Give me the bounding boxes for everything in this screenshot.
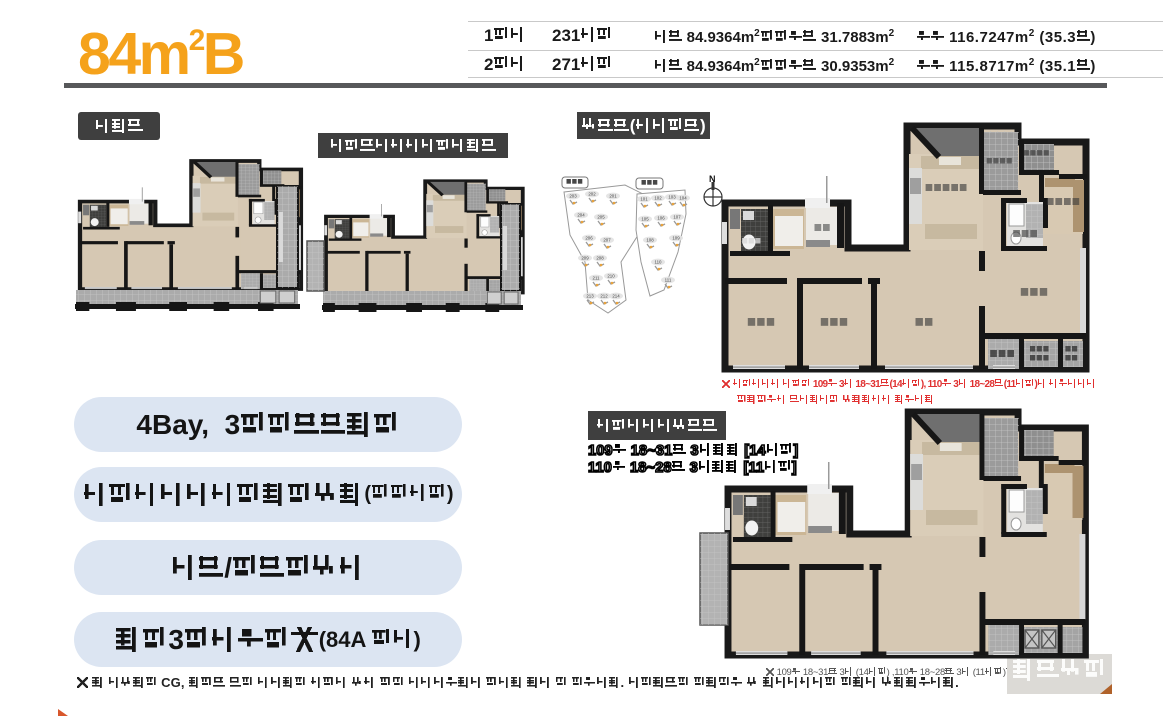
svg-text:213: 213: [586, 294, 594, 299]
svg-text:106: 106: [657, 216, 665, 221]
svg-text:210: 210: [607, 274, 615, 279]
svg-text:208: 208: [596, 256, 604, 261]
svg-text:103: 103: [668, 195, 676, 200]
svg-text:110: 110: [655, 260, 663, 265]
svg-text:212: 212: [600, 294, 608, 299]
svg-text:111: 111: [665, 278, 672, 283]
svg-text:102: 102: [654, 196, 662, 201]
svg-text:202: 202: [588, 192, 596, 197]
svg-text:205: 205: [597, 215, 605, 220]
svg-text:204: 204: [577, 213, 585, 218]
svg-text:207: 207: [603, 238, 611, 243]
svg-text:105: 105: [641, 217, 649, 222]
svg-text:101: 101: [640, 197, 648, 202]
svg-text:108: 108: [646, 238, 654, 243]
svg-text:107: 107: [673, 215, 681, 220]
svg-text:209: 209: [581, 256, 589, 261]
svg-text:201: 201: [609, 194, 617, 199]
svg-text:214: 214: [612, 294, 620, 299]
svg-text:203: 203: [569, 194, 577, 199]
svg-text:104: 104: [679, 196, 687, 201]
svg-text:211: 211: [593, 276, 601, 281]
svg-text:109: 109: [672, 236, 680, 241]
svg-text:N: N: [709, 174, 716, 184]
svg-text:206: 206: [585, 236, 593, 241]
